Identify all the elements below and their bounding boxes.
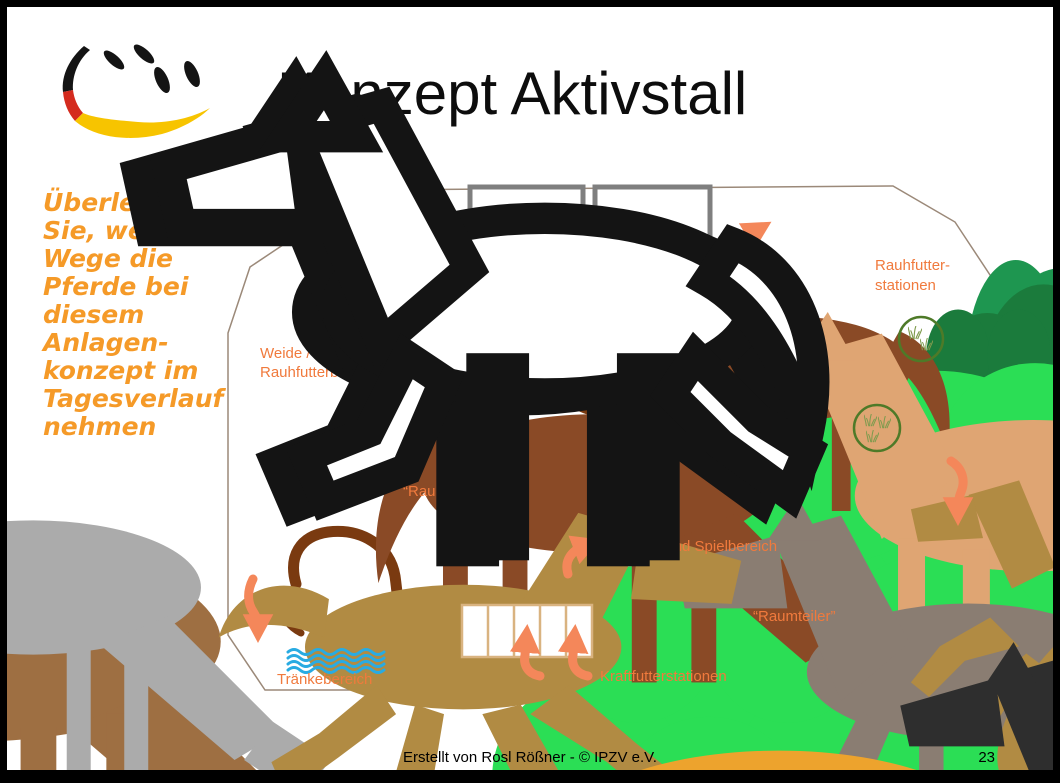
logo-swoosh-black — [63, 46, 90, 92]
label-rauhfutter-1: Rauhfutter- — [875, 257, 950, 274]
label-traenke: Tränkebereich — [277, 671, 372, 688]
label-kraftfutter: Kraftfutterstationen — [600, 668, 727, 685]
label-rauhfutter-2: stationen — [875, 277, 936, 294]
slide: Konzept Aktivstall Überlegen Sie, welche… — [0, 0, 1060, 783]
logo-swoosh-gold — [75, 108, 210, 138]
label-weide-1: Weide / — [260, 345, 311, 362]
aktivstall-diagram: Stall- und Ruhebereich Rauhfutter- stati… — [7, 7, 1053, 770]
label-raumteiler-bottom: “Raumteiler” — [753, 608, 836, 625]
logo-horse-mane — [131, 42, 157, 67]
footer-credit: Erstellt von Rosl Rößner - © IPZV e.V. — [7, 749, 1053, 766]
logo-horse-tail — [181, 59, 203, 89]
ipzv-logo — [63, 42, 814, 551]
logo-horse-mane — [101, 48, 127, 73]
logo-horse-tail — [151, 65, 173, 95]
page-number: 23 — [978, 749, 995, 766]
